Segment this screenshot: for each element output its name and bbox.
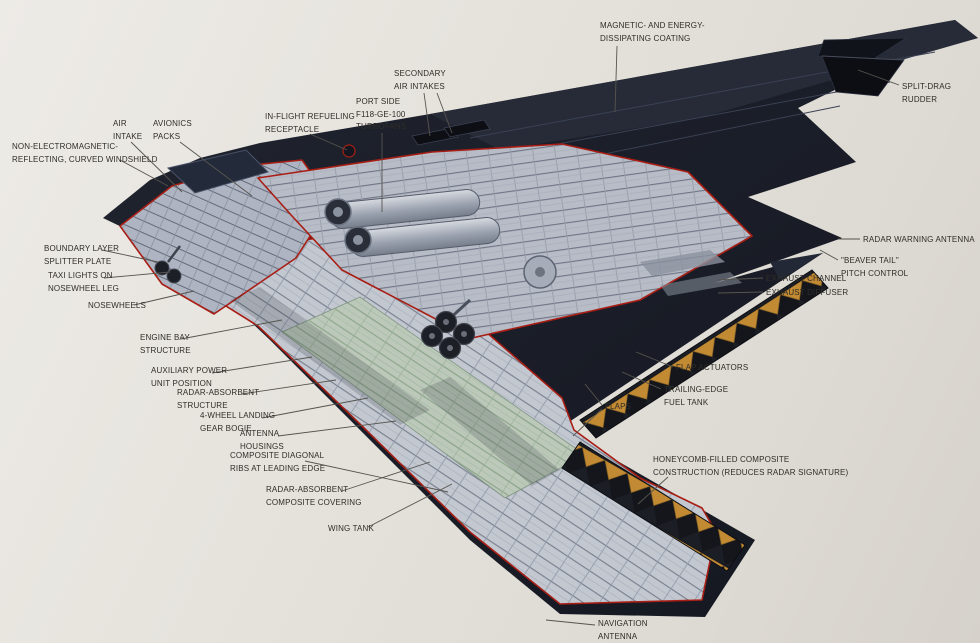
leader-beaver-tail <box>820 250 838 260</box>
rotary-launcher-hub <box>535 267 545 277</box>
leader-windshield <box>120 160 168 186</box>
b2-cutaway-illustration <box>0 0 980 643</box>
engine-fan-2-hub <box>353 235 363 245</box>
engine-fan-1-hub <box>333 207 343 217</box>
diagram-stage: MAGNETIC- AND ENERGY- DISSIPATING COATIN… <box>0 0 980 643</box>
leader-navigation-antenna <box>546 620 595 625</box>
refueling-receptacle <box>343 145 355 157</box>
